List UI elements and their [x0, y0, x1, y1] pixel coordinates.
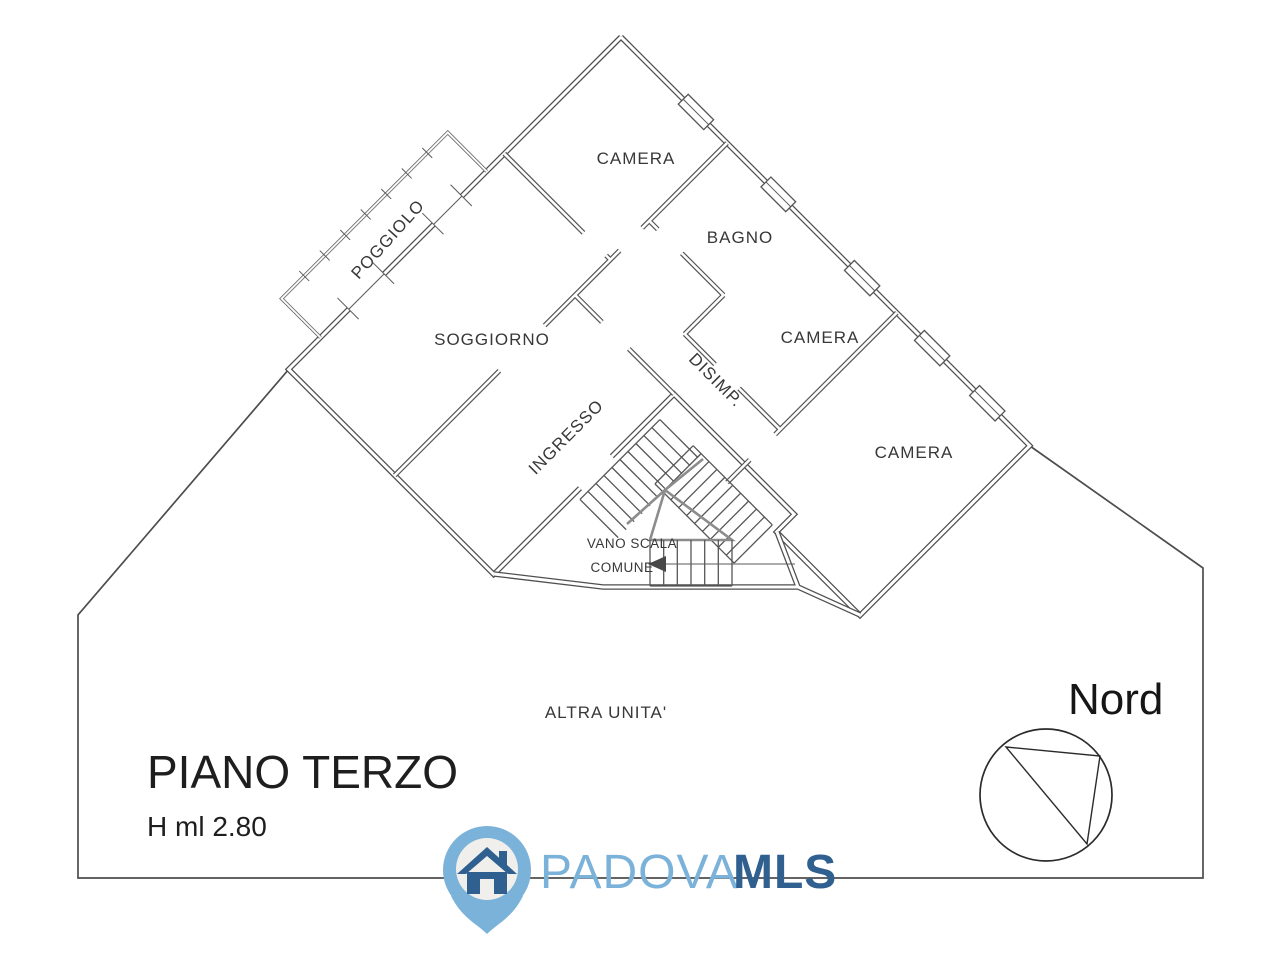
- stair-flights: [580, 416, 772, 608]
- room-label-camera-top: CAMERA: [597, 149, 676, 168]
- room-label-bagno: BAGNO: [707, 228, 773, 247]
- floor-plan-canvas: CAMERA BAGNO CAMERA CAMERA SOGGIORNO ING…: [0, 0, 1280, 960]
- stairwell-label-line1: VANO SCALA: [587, 536, 677, 551]
- floor-height: H ml 2.80: [147, 811, 267, 842]
- floor-title-block: PIANO TERZO H ml 2.80: [147, 746, 458, 842]
- room-label-camera-low: CAMERA: [875, 443, 954, 462]
- room-label-soggiorno: SOGGIORNO: [434, 330, 550, 349]
- apartment-rotated-frame: [245, 0, 1035, 778]
- room-labels: CAMERA BAGNO CAMERA CAMERA SOGGIORNO ING…: [348, 149, 954, 722]
- logo-text-padova: PADOVA: [540, 846, 739, 899]
- compass-icon: [980, 729, 1112, 861]
- room-label-ingresso: INGRESSO: [525, 396, 608, 479]
- logo-pin-icon: [443, 826, 531, 934]
- room-label-disimpegno: DISIMP.: [685, 349, 747, 411]
- floor-title: PIANO TERZO: [147, 746, 458, 798]
- logo: PADOVA MLS: [443, 826, 837, 934]
- logo-text-mls: MLS: [733, 846, 837, 899]
- parcel-boundary: [78, 369, 1203, 878]
- compass-label: Nord: [1068, 675, 1163, 724]
- other-unit-label: ALTRA UNITA': [545, 703, 667, 722]
- parcel-boundary-line: [78, 369, 1203, 878]
- compass: Nord: [980, 675, 1163, 861]
- room-label-camera-mid: CAMERA: [781, 328, 860, 347]
- stairwell-label-line2: COMUNE: [591, 560, 654, 575]
- floor-plan: CAMERA BAGNO CAMERA CAMERA SOGGIORNO ING…: [0, 0, 1280, 960]
